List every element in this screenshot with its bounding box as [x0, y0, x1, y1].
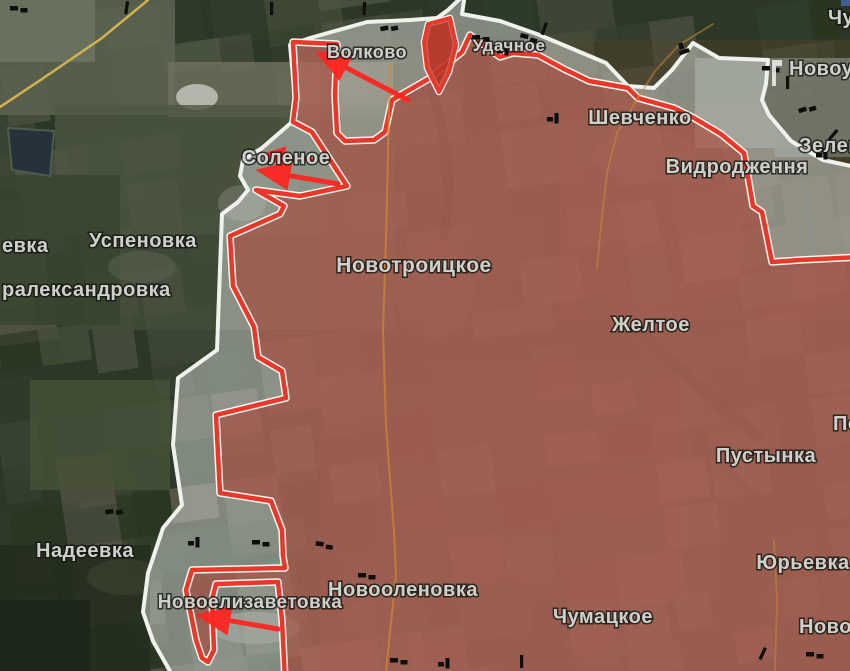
- place-label: Новотроицкое: [336, 254, 491, 277]
- place-label: Новоа: [799, 616, 850, 638]
- place-label: Чу: [828, 7, 850, 29]
- terrain-patch: [0, 600, 90, 671]
- fortification-icon: [520, 655, 523, 668]
- place-label: Удачное: [473, 36, 546, 55]
- fortification-icon: [270, 2, 273, 15]
- place-label: Шевченко: [588, 107, 692, 129]
- place-label: Соленое: [242, 147, 331, 169]
- terrain-patch: [30, 380, 170, 490]
- pond: [8, 128, 54, 176]
- place-label: евка: [2, 235, 49, 257]
- situation-map[interactable]: ЧуНовоукЗеленШевченкоВидродженняУдачноеВ…: [0, 0, 850, 671]
- place-label: Зелен: [799, 135, 850, 157]
- field-plot: [38, 323, 93, 366]
- place-label: ралександровка: [2, 279, 171, 301]
- place-label: Волково: [327, 42, 407, 62]
- place-label: Новоелизаветовка: [158, 592, 343, 613]
- place-label: Видродження: [666, 156, 809, 178]
- field-plot: [696, 0, 742, 2]
- place-label: Новооленовка: [328, 579, 478, 601]
- place-label: Успеновка: [89, 230, 197, 252]
- place-label: Пустынка: [716, 445, 817, 467]
- place-label: Новоук: [789, 58, 850, 80]
- place-label: Пе: [833, 413, 850, 435]
- place-label: Чумацкое: [553, 606, 653, 628]
- place-label: Желтое: [611, 314, 690, 336]
- place-label: Надеевка: [36, 540, 134, 562]
- map-canvas: ЧуНовоукЗеленШевченкоВидродженняУдачноеВ…: [0, 0, 850, 671]
- place-label: Юрьевка: [756, 552, 850, 574]
- blue-marker-icon: [841, 0, 850, 6]
- fortification-icon: [362, 2, 366, 15]
- field-plot: [315, 0, 390, 11]
